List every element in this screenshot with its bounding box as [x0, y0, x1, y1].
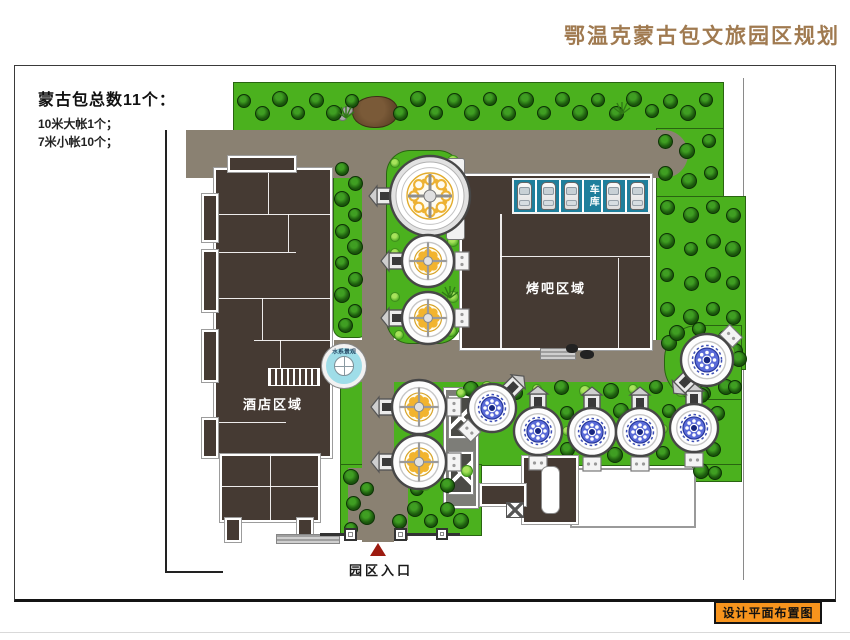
grass-clump-icon — [613, 101, 631, 120]
tree-icon — [704, 166, 718, 180]
tree-icon — [660, 200, 675, 215]
stairs-icon — [268, 368, 320, 386]
car-icon — [541, 182, 556, 210]
gate-post — [394, 528, 407, 541]
legend-heading: 蒙古包总数11个： — [38, 86, 176, 110]
hotel-building: 酒店区域 — [216, 170, 330, 456]
page-title: 鄂温克蒙古包文旅园区规划 — [390, 20, 840, 50]
parking-stall — [535, 180, 558, 212]
parking-stall — [601, 180, 624, 212]
tree-icon — [334, 191, 350, 207]
hotel-lower-block — [222, 456, 318, 520]
tree-icon — [705, 267, 721, 283]
tree-icon — [348, 304, 362, 318]
long-table-icon — [541, 466, 560, 514]
tree-icon — [660, 268, 674, 282]
tree-icon — [334, 287, 350, 303]
bbq-area-label: 烤吧区域 — [462, 278, 650, 297]
tree-icon — [348, 176, 363, 191]
car-icon — [630, 182, 645, 210]
water-feature-fountain-icon — [334, 356, 354, 376]
parking-stall — [625, 180, 648, 212]
fire-pit-icon — [506, 502, 524, 518]
parking-stall — [559, 180, 582, 212]
tree-icon — [348, 208, 362, 222]
entrance-arrow-icon — [370, 543, 386, 556]
hotel-wing — [204, 252, 216, 310]
tree-icon — [429, 106, 443, 120]
boundary-line-bottom-left — [165, 571, 223, 573]
parked-bikes-icon — [566, 344, 578, 353]
tree-icon — [659, 233, 675, 249]
car-icon — [564, 182, 579, 210]
drawing-caption-tag: 设计平面布置图 — [714, 601, 822, 624]
water-feature-label: 水系景观 — [324, 348, 365, 357]
tree-icon — [702, 134, 716, 148]
tree-icon — [681, 173, 697, 189]
yurt-small-7m-blue — [655, 308, 759, 417]
garage-strip: 车库 — [512, 178, 650, 214]
garage-label: 车库 — [582, 180, 601, 212]
tree-icon — [464, 105, 480, 121]
tree-icon — [347, 239, 363, 255]
hotel-wing — [204, 332, 216, 380]
tree-icon — [393, 106, 408, 121]
hotel-wing — [204, 196, 216, 240]
tree-icon — [518, 92, 534, 108]
tree-icon — [348, 272, 363, 287]
tree-icon — [699, 93, 713, 107]
wall-segment — [320, 533, 346, 536]
entrance-label: 园区入口 — [336, 560, 426, 579]
parked-bikes-icon — [580, 350, 594, 359]
tree-icon — [726, 276, 740, 290]
tree-icon — [726, 208, 741, 223]
tree-icon — [684, 242, 698, 256]
tree-icon — [237, 94, 251, 108]
legend-line-large: 10米大帐1个； — [38, 115, 118, 132]
tree-icon — [335, 224, 350, 239]
gate-post — [436, 528, 448, 540]
parking-stall — [514, 180, 535, 212]
tree-icon — [555, 92, 570, 107]
tree-icon — [658, 166, 673, 181]
gate-post — [344, 528, 357, 541]
boundary-line-left — [165, 130, 167, 573]
tree-icon — [255, 106, 270, 121]
tree-icon — [683, 207, 699, 223]
tree-icon — [410, 91, 426, 107]
tree-icon — [680, 105, 696, 121]
tree-icon — [335, 256, 349, 270]
wall-segment — [406, 533, 460, 536]
tree-icon — [272, 91, 288, 107]
hotel-wing — [204, 420, 216, 456]
hotel-post — [227, 520, 239, 540]
tree-icon — [706, 234, 721, 249]
tree-icon — [591, 93, 605, 107]
car-icon — [606, 182, 621, 210]
tree-icon — [537, 106, 551, 120]
hotel-wing — [230, 158, 294, 170]
tree-icon — [725, 241, 741, 257]
site-plan-page: 鄂温克蒙古包文旅园区规划 设计平面布置图 蒙古包总数11个： 10米大帐1个； … — [0, 0, 850, 640]
tree-icon — [338, 318, 353, 333]
tree-icon — [501, 106, 516, 121]
tree-icon — [346, 496, 361, 511]
tree-icon — [645, 104, 659, 118]
tree-icon — [291, 106, 305, 120]
tree-icon — [663, 94, 678, 109]
grass-clump-icon — [337, 105, 355, 124]
hotel-area-label: 酒店区域 — [216, 394, 330, 413]
car-icon — [517, 182, 532, 210]
tree-icon — [309, 93, 324, 108]
tree-icon — [447, 93, 462, 108]
tree-icon — [658, 134, 673, 149]
tree-icon — [483, 92, 497, 106]
legend-line-small: 7米小帐10个； — [38, 133, 118, 150]
tree-icon — [706, 200, 720, 214]
tree-icon — [335, 162, 349, 176]
tree-icon — [684, 276, 699, 291]
page-edge-line — [0, 632, 850, 633]
tree-icon — [343, 469, 359, 485]
tree-icon — [679, 143, 695, 159]
tree-icon — [572, 105, 588, 121]
